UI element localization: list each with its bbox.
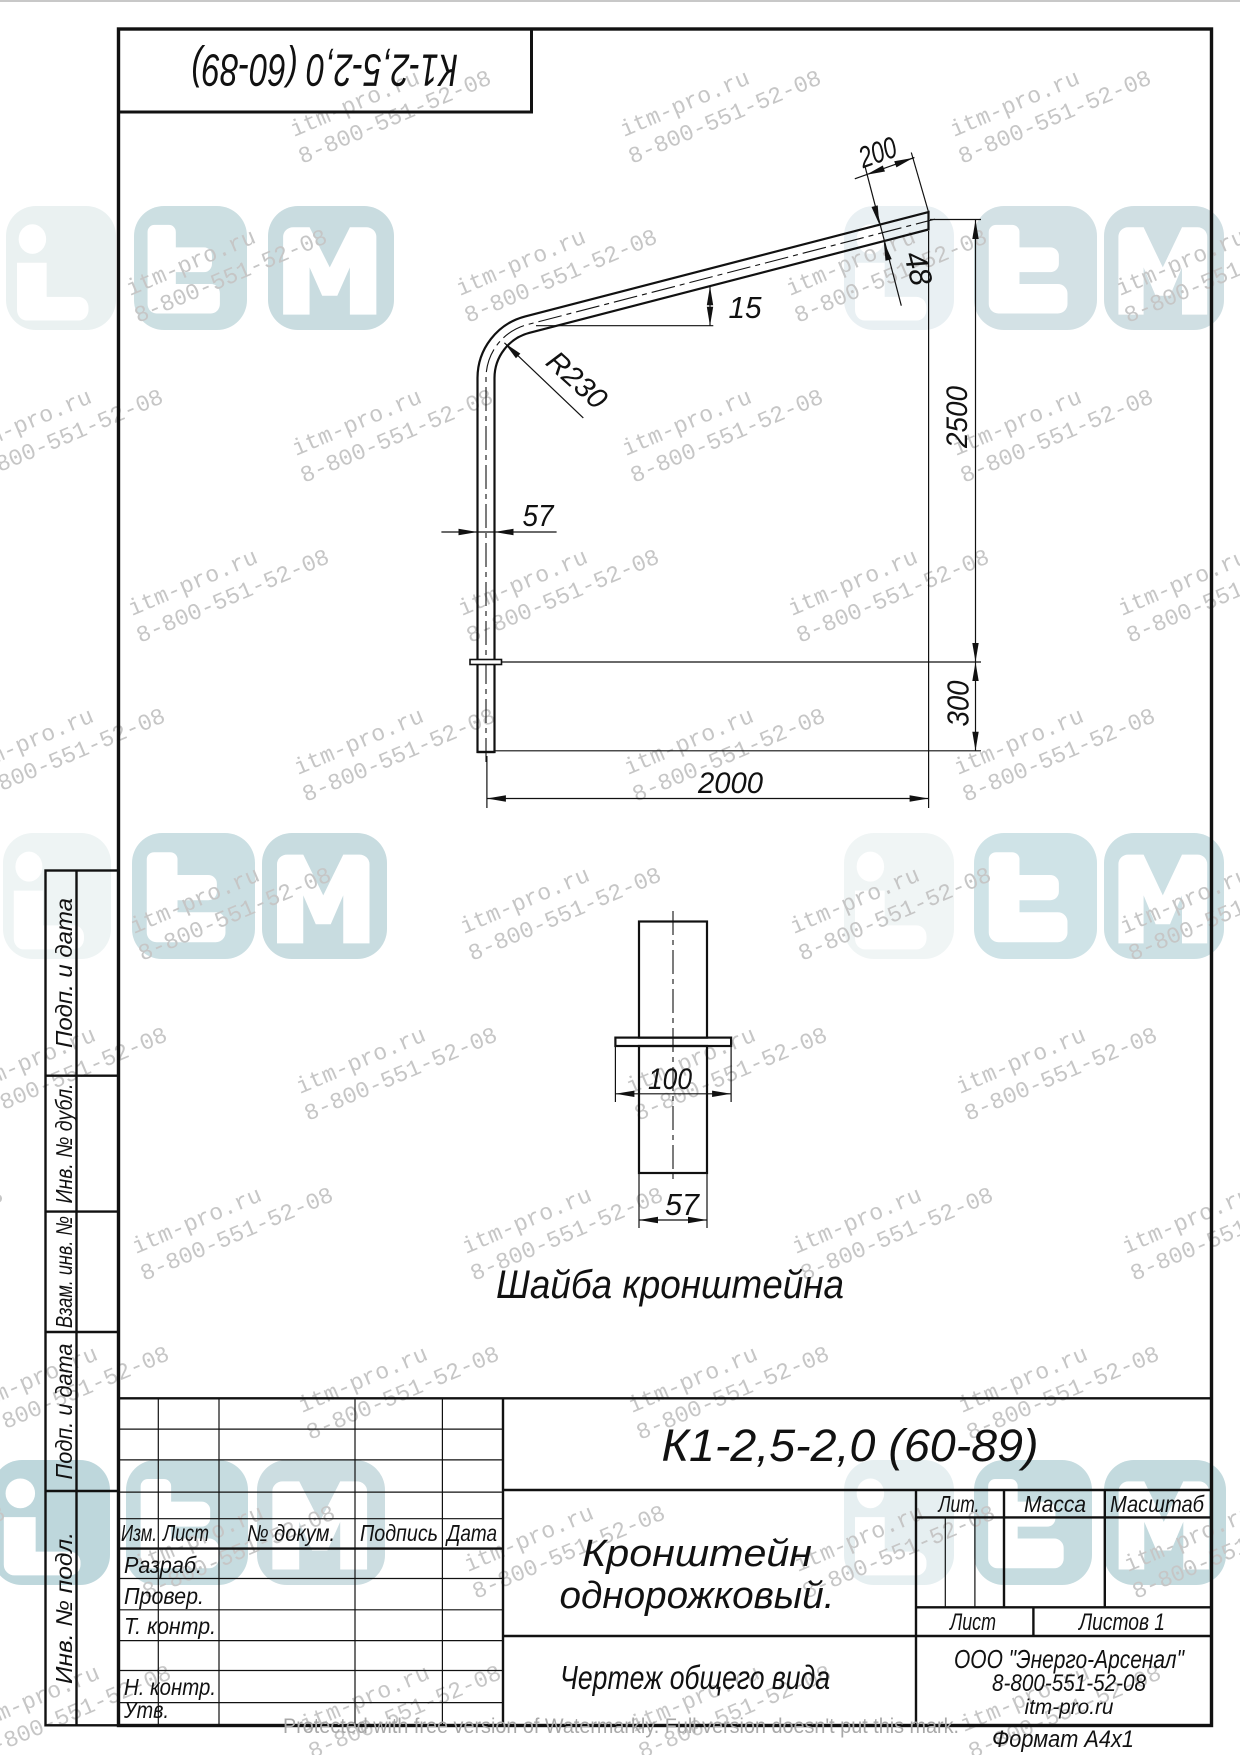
svg-text:Провер.: Провер.: [124, 1583, 204, 1609]
svg-text:Чертеж общего вида: Чертеж общего вида: [560, 1659, 830, 1696]
svg-text:Изм.: Изм.: [121, 1520, 157, 1546]
svg-text:Лист: Лист: [949, 1609, 996, 1636]
svg-text:15: 15: [729, 290, 763, 325]
svg-text:Лист: Лист: [161, 1520, 209, 1546]
svg-text:57: 57: [523, 498, 556, 533]
svg-text:Взам. инв. №: Взам. инв. №: [51, 1216, 77, 1328]
svg-text:Листов 1: Листов 1: [1077, 1609, 1165, 1636]
svg-text:К1-2,5-2,0 (60-89): К1-2,5-2,0 (60-89): [191, 45, 458, 96]
svg-text:300: 300: [941, 681, 976, 727]
svg-text:Масштаб: Масштаб: [1110, 1491, 1205, 1517]
svg-text:8-800-551-52-08: 8-800-551-52-08: [992, 1670, 1147, 1697]
svg-text:100: 100: [648, 1063, 692, 1096]
svg-text:Подп. и дата: Подп. и дата: [51, 898, 77, 1048]
svg-text:Лит.: Лит.: [937, 1491, 980, 1517]
svg-text:Protected with free version of: Protected with free version of Watermark…: [283, 1715, 959, 1738]
svg-text:однорожковый.: однорожковый.: [560, 1575, 835, 1617]
svg-text:Подпись: Подпись: [360, 1520, 438, 1546]
svg-text:Инв. № подл.: Инв. № подл.: [51, 1532, 77, 1684]
svg-text:Шайба кронштейна: Шайба кронштейна: [496, 1263, 844, 1307]
svg-text:Разраб.: Разраб.: [124, 1552, 202, 1578]
svg-text:2500: 2500: [941, 386, 974, 449]
svg-text:Кронштейн: Кронштейн: [582, 1533, 812, 1575]
svg-text:К1-2,5-2,0 (60-89): К1-2,5-2,0 (60-89): [662, 1420, 1039, 1471]
svg-text:№ докум.: № докум.: [247, 1520, 335, 1546]
svg-text:Т. контр.: Т. контр.: [124, 1613, 216, 1639]
svg-text:Формат А4х1: Формат А4х1: [992, 1726, 1134, 1753]
svg-text:Подп. и дата: Подп. и дата: [51, 1344, 77, 1480]
svg-text:57: 57: [665, 1187, 701, 1222]
svg-text:Дата: Дата: [445, 1520, 497, 1546]
svg-text:Масса: Масса: [1024, 1491, 1086, 1517]
svg-text:2000: 2000: [697, 767, 763, 800]
svg-text:Инв. № дубл.: Инв. № дубл.: [51, 1084, 77, 1204]
svg-text:Утв.: Утв.: [123, 1697, 169, 1723]
svg-text:itm-pro.ru: itm-pro.ru: [1025, 1696, 1114, 1719]
